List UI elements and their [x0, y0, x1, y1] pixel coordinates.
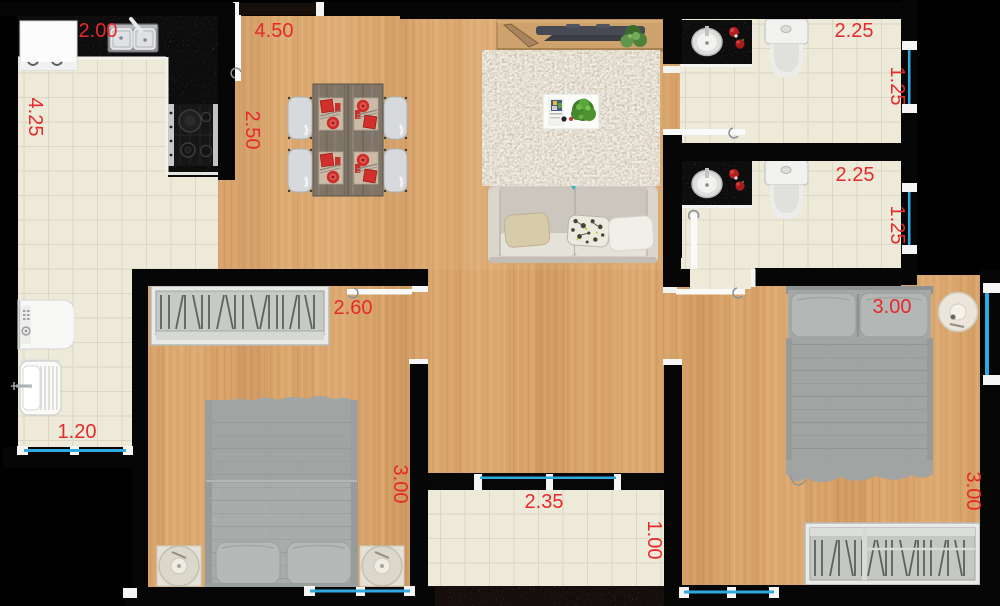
svg-text:4.50: 4.50 [255, 20, 294, 42]
svg-text:1.25: 1.25 [886, 67, 908, 106]
svg-text:3.00: 3.00 [962, 472, 984, 511]
svg-text:1.25: 1.25 [886, 206, 908, 245]
svg-text:3.00: 3.00 [873, 296, 912, 318]
svg-text:2.60: 2.60 [334, 297, 373, 319]
svg-text:4.25: 4.25 [24, 98, 46, 137]
svg-text:2.00: 2.00 [79, 20, 118, 42]
svg-text:3.00: 3.00 [389, 465, 411, 504]
svg-text:2.25: 2.25 [835, 20, 874, 42]
svg-text:2.35: 2.35 [525, 491, 564, 513]
svg-text:1.20: 1.20 [58, 421, 97, 443]
svg-text:2.50: 2.50 [241, 111, 263, 150]
svg-text:2.25: 2.25 [836, 164, 875, 186]
svg-text:1.00: 1.00 [643, 521, 665, 560]
